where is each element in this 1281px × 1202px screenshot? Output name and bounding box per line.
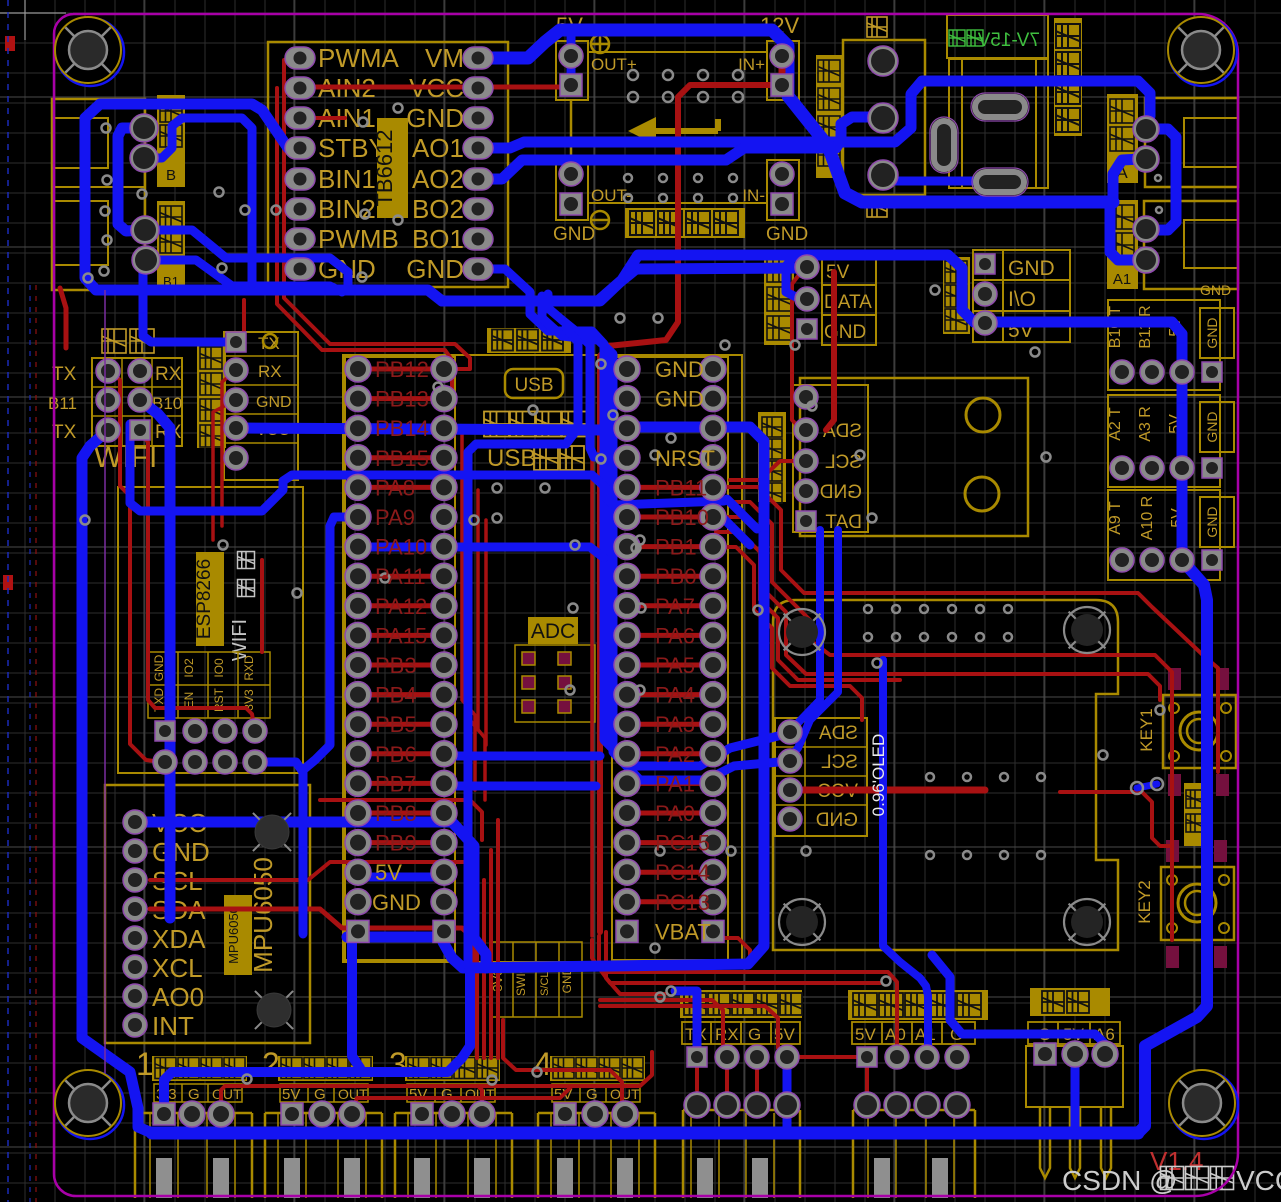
svg-text:GND: GND bbox=[766, 224, 808, 245]
svg-text:BO2: BO2 bbox=[412, 194, 464, 224]
svg-text:PA5: PA5 bbox=[655, 653, 695, 678]
svg-text:GND: GND bbox=[820, 482, 862, 503]
svg-text:GND: GND bbox=[1204, 506, 1220, 537]
svg-text:PWMA: PWMA bbox=[318, 43, 400, 73]
svg-text:PA0: PA0 bbox=[655, 801, 695, 826]
svg-text:EN: EN bbox=[182, 692, 196, 709]
svg-text:TX: TX bbox=[52, 422, 77, 443]
svg-text:PB4: PB4 bbox=[375, 683, 417, 708]
svg-text:RX: RX bbox=[155, 364, 182, 385]
svg-text:GND: GND bbox=[406, 254, 464, 284]
svg-text:7V-15V: 7V-15V bbox=[977, 30, 1040, 51]
svg-text:SDA: SDA bbox=[819, 723, 858, 744]
svg-text:PC14: PC14 bbox=[655, 860, 710, 885]
svg-text:A2 T: A2 T bbox=[1107, 407, 1124, 441]
svg-text:USB: USB bbox=[487, 445, 536, 472]
svg-text:IO2: IO2 bbox=[182, 658, 196, 678]
svg-text:5V: 5V bbox=[826, 262, 850, 283]
svg-text:AO1: AO1 bbox=[412, 133, 464, 163]
svg-text:KEY1: KEY1 bbox=[1137, 708, 1156, 751]
svg-text:PA1: PA1 bbox=[655, 771, 695, 796]
svg-text:A9 T: A9 T bbox=[1107, 501, 1124, 535]
svg-text:PA2: PA2 bbox=[655, 742, 695, 767]
svg-text:GND: GND bbox=[406, 103, 464, 133]
svg-text:RX: RX bbox=[258, 362, 282, 381]
svg-text:PB0: PB0 bbox=[655, 564, 697, 589]
svg-text:PB3: PB3 bbox=[375, 653, 417, 678]
svg-text:ESP8266: ESP8266 bbox=[194, 559, 215, 639]
svg-text:PA11: PA11 bbox=[375, 564, 426, 589]
svg-text:GND: GND bbox=[1204, 317, 1220, 348]
svg-text:PB9: PB9 bbox=[375, 831, 417, 856]
svg-text:5V: 5V bbox=[282, 1086, 300, 1103]
svg-text:PC13: PC13 bbox=[655, 890, 710, 915]
svg-text:1: 1 bbox=[136, 1046, 154, 1082]
svg-text:IN-: IN- bbox=[742, 186, 765, 205]
svg-text:RX: RX bbox=[715, 1025, 739, 1044]
svg-text:RXD: RXD bbox=[242, 655, 256, 681]
svg-text:PA8: PA8 bbox=[375, 475, 415, 500]
svg-text:A10 R: A10 R bbox=[1139, 496, 1156, 540]
svg-text:0.96'OLED: 0.96'OLED bbox=[869, 734, 888, 817]
svg-text:GND: GND bbox=[655, 357, 704, 382]
svg-text:WIFI: WIFI bbox=[229, 619, 251, 661]
svg-text:GND: GND bbox=[1008, 257, 1055, 280]
svg-text:5V: 5V bbox=[855, 1025, 876, 1044]
svg-text:NRST: NRST bbox=[655, 446, 715, 471]
svg-text:VM: VM bbox=[425, 43, 464, 73]
svg-text:GND: GND bbox=[1204, 411, 1220, 442]
svg-text:VBAT: VBAT bbox=[655, 919, 711, 944]
svg-text:GND: GND bbox=[824, 322, 866, 343]
svg-text:5V: 5V bbox=[375, 860, 402, 885]
svg-text:XDA: XDA bbox=[152, 924, 206, 954]
svg-text:PC15: PC15 bbox=[655, 831, 710, 856]
svg-text:AO0: AO0 bbox=[152, 982, 204, 1012]
svg-text:KEY2: KEY2 bbox=[1135, 880, 1154, 923]
svg-text:5V: 5V bbox=[409, 1086, 427, 1103]
svg-text:PB12: PB12 bbox=[375, 357, 429, 382]
svg-text:GND: GND bbox=[152, 654, 166, 681]
svg-text:G: G bbox=[748, 1025, 761, 1044]
svg-text:PWMB: PWMB bbox=[318, 224, 399, 254]
svg-text:BIN1: BIN1 bbox=[318, 164, 376, 194]
svg-text:PA12: PA12 bbox=[375, 594, 427, 619]
svg-text:PA10: PA10 bbox=[375, 535, 427, 560]
svg-text:MPU6050: MPU6050 bbox=[248, 857, 278, 973]
svg-text:PA7: PA7 bbox=[655, 594, 695, 619]
svg-text:PA6: PA6 bbox=[655, 623, 695, 648]
svg-text:PB14: PB14 bbox=[375, 416, 429, 441]
svg-text:B: B bbox=[166, 167, 176, 184]
svg-text:BO1: BO1 bbox=[412, 224, 464, 254]
svg-text:PB6: PB6 bbox=[375, 742, 417, 767]
svg-text:PB5: PB5 bbox=[375, 712, 417, 737]
svg-text:OUT: OUT bbox=[610, 1086, 640, 1102]
svg-text:PA9: PA9 bbox=[375, 505, 415, 530]
svg-text:PB1: PB1 bbox=[655, 535, 697, 560]
svg-text:A3 R: A3 R bbox=[1137, 406, 1154, 442]
svg-text:GND: GND bbox=[372, 890, 421, 915]
svg-text:A1: A1 bbox=[1113, 271, 1131, 288]
svg-text:PB8: PB8 bbox=[375, 801, 417, 826]
svg-text:DAT: DAT bbox=[825, 512, 862, 533]
svg-text:PA3: PA3 bbox=[655, 712, 695, 737]
svg-text:I\O: I\O bbox=[1008, 288, 1036, 311]
svg-text:GND: GND bbox=[655, 387, 704, 412]
svg-text:INT: INT bbox=[152, 1011, 194, 1041]
svg-text:PB15: PB15 bbox=[375, 446, 429, 471]
svg-text:GND: GND bbox=[256, 394, 292, 411]
svg-text:OUT: OUT bbox=[212, 1086, 242, 1102]
svg-text:SCL: SCL bbox=[821, 752, 858, 773]
svg-text:PB11: PB11 bbox=[655, 475, 707, 500]
svg-text:B11: B11 bbox=[48, 394, 77, 413]
svg-text:XCL: XCL bbox=[152, 953, 203, 983]
svg-text:PB7: PB7 bbox=[375, 771, 417, 796]
svg-text:GND: GND bbox=[1200, 282, 1231, 298]
svg-text:GND: GND bbox=[816, 810, 858, 831]
svg-text:USB: USB bbox=[514, 375, 553, 396]
svg-text:MPU6050: MPU6050 bbox=[226, 906, 241, 964]
svg-text:TB6612: TB6612 bbox=[372, 129, 397, 206]
svg-text:PB13: PB13 bbox=[375, 387, 429, 412]
svg-text:PB10: PB10 bbox=[655, 505, 709, 530]
svg-text:VCC: VCC bbox=[1236, 1165, 1281, 1196]
svg-text:ADC: ADC bbox=[531, 620, 575, 643]
svg-text:PA15: PA15 bbox=[375, 623, 427, 648]
svg-text:TX: TX bbox=[52, 364, 77, 385]
svg-text:PA4: PA4 bbox=[655, 683, 695, 708]
svg-text:GND: GND bbox=[553, 224, 595, 245]
svg-text:GND: GND bbox=[152, 837, 210, 867]
svg-text:AO2: AO2 bbox=[412, 164, 464, 194]
svg-text:IO0: IO0 bbox=[212, 658, 226, 678]
